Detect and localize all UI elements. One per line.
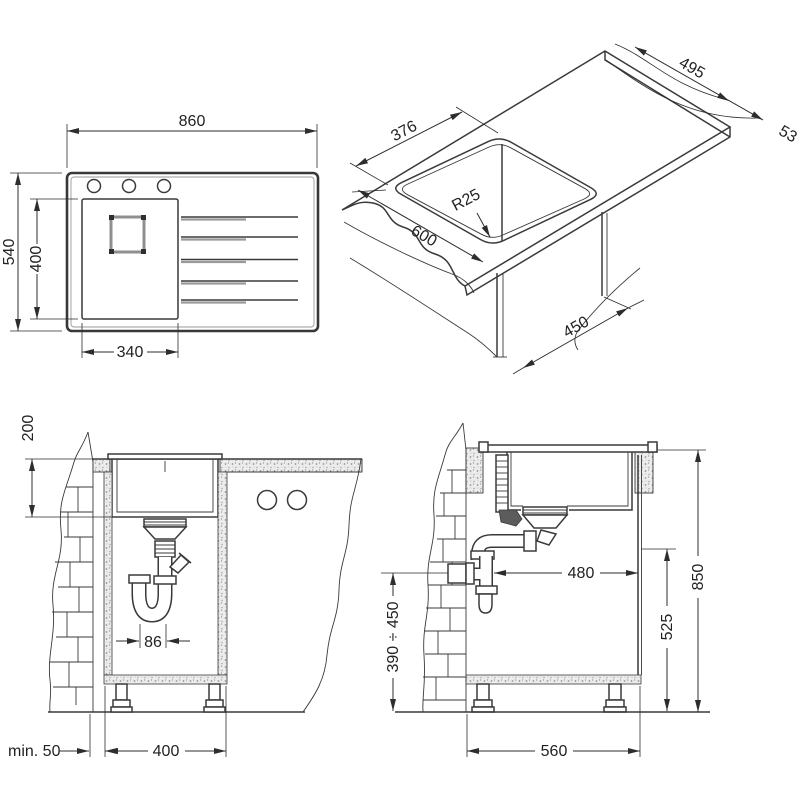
dim-worktop-height: 850 — [658, 450, 707, 712]
overflow-hose — [496, 455, 522, 526]
cabinet-feet-front — [111, 684, 225, 712]
cabinet-feet-side — [472, 684, 626, 712]
wall-brick-courses — [50, 487, 93, 705]
worktop-top-face — [342, 51, 730, 286]
dim-overall-width: 860 — [67, 113, 317, 168]
side-section-drawing: 480 525 850 390 ÷ 450 560 — [381, 423, 710, 760]
dim-wall-clearance: min. 50 — [8, 686, 124, 760]
dim-label-480: 480 — [568, 565, 595, 582]
wall-brick-courses-side — [423, 470, 466, 700]
dim-drain-to-front: 480 — [494, 565, 638, 582]
front-section-drawing: 200 86 min. 50 400 — [8, 415, 362, 760]
isometric-view-drawing: 376 495 53 R25 600 — [342, 44, 800, 456]
dim-trap-offset: 86 — [116, 624, 190, 651]
wall-left — [49, 432, 93, 712]
drain-trap-front — [129, 519, 191, 615]
dim-label-560: 560 — [541, 743, 568, 760]
top-view-drawing: 860 540 400 340 — [1, 113, 318, 361]
dim-label-400b: 400 — [153, 743, 180, 760]
dim-label-53: 53 — [776, 123, 800, 147]
dim-label-390-450: 390 ÷ 450 — [385, 601, 402, 672]
dim-label-340: 340 — [117, 344, 144, 361]
dim-cabinet-depth-iso: 450 — [502, 297, 644, 456]
dim-label-86: 86 — [144, 634, 162, 651]
panel-hole — [258, 491, 277, 510]
sink-installation-drawing: 860 540 400 340 — [0, 0, 800, 800]
worktop-section — [93, 459, 362, 472]
cabinet-front-right-post — [602, 212, 607, 296]
dim-label-200: 200 — [20, 415, 37, 442]
dim-label-min50: min. 50 — [8, 743, 61, 760]
panel-hole — [288, 491, 307, 510]
dim-label-525: 525 — [659, 614, 676, 641]
bowl-section — [108, 454, 222, 517]
cabinet-front-left-post — [493, 273, 507, 357]
dim-label-860: 860 — [179, 113, 206, 130]
sink-outline — [67, 173, 318, 331]
back-batten-section — [466, 448, 483, 493]
side-panel — [227, 459, 361, 712]
dim-label-400: 400 — [28, 246, 45, 273]
dim-label-540: 540 — [1, 239, 18, 266]
dim-label-850: 850 — [690, 564, 707, 591]
dim-label-495: 495 — [676, 54, 708, 82]
technical-drawing-page: 860 540 400 340 — [0, 0, 800, 800]
dim-inner-height: 525 — [641, 549, 676, 711]
